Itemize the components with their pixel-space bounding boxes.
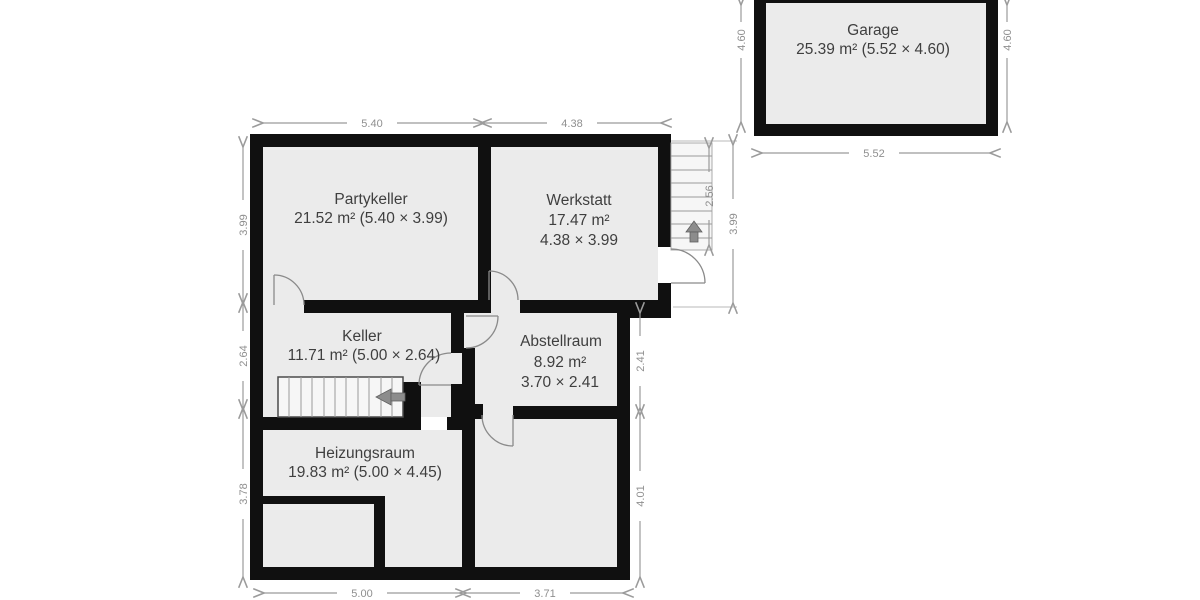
keller-name: Keller: [342, 328, 382, 345]
abstellraum-area: 8.92 m²: [534, 354, 587, 371]
dim-right-bottom: 4.01: [635, 415, 647, 577]
dim-garage-right: 4.60: [1002, 5, 1014, 122]
keller-stairs: [278, 377, 405, 417]
floor-plan-page: 5.40 4.38 3.99 2.64 3.78 3.99: [0, 0, 1200, 600]
werkstatt-size: 4.38 × 3.99: [540, 232, 618, 249]
abstellraum-name: Abstellraum: [520, 333, 602, 350]
keller-area: 11.71 m² (5.00 × 2.64): [288, 347, 441, 364]
dim-label: 3.71: [534, 588, 555, 600]
dim-garage-bottom: 5.52: [762, 148, 990, 160]
room-label-werkstatt: Werkstatt 17.47 m² 4.38 × 3.99: [540, 192, 618, 249]
dim-label: 2.56: [704, 185, 716, 206]
dim-label: 3.99: [238, 214, 250, 235]
partykeller-area: 21.52 m² (5.40 × 3.99): [294, 210, 448, 227]
dim-label: 5.52: [863, 148, 884, 160]
dim-label: 4.60: [736, 29, 748, 50]
dim-label: 2.41: [635, 350, 647, 371]
dim-label: 3.99: [728, 213, 740, 234]
door-exterior-stairs: [671, 249, 705, 283]
dim-garage-left: 4.60: [736, 5, 748, 122]
dim-top-left: 5.40: [263, 118, 481, 130]
werkstatt-area: 17.47 m²: [548, 212, 609, 229]
dim-left-top: 3.99: [238, 147, 250, 302]
dim-left-mid: 2.64: [238, 304, 250, 408]
heizungsraum-area: 19.83 m² (5.00 × 4.45): [288, 464, 442, 481]
dim-bottom-left: 5.00: [264, 588, 460, 600]
garage-area: 25.39 m² (5.52 × 4.60): [796, 41, 950, 58]
partykeller-name: Partykeller: [334, 191, 407, 208]
werkstatt-name: Werkstatt: [546, 192, 612, 209]
abstellraum-size: 3.70 × 2.41: [521, 374, 599, 391]
dim-label: 3.78: [238, 483, 250, 504]
floor-plan-canvas: 5.40 4.38 3.99 2.64 3.78 3.99: [0, 0, 1200, 600]
dim-right-top: 3.99: [728, 145, 740, 303]
dim-label: 4.60: [1002, 29, 1014, 50]
dim-bottom-right: 3.71: [466, 588, 623, 600]
dim-label: 2.64: [238, 345, 250, 366]
dim-left-bottom: 3.78: [238, 410, 250, 577]
dim-label: 5.40: [361, 118, 382, 130]
dim-label: 5.00: [351, 588, 372, 600]
dim-label: 4.01: [635, 485, 647, 506]
dim-top-right: 4.38: [484, 118, 661, 130]
heizungsraum-name: Heizungsraum: [315, 445, 415, 462]
garage-name: Garage: [847, 22, 899, 39]
dim-right-mid: 2.41: [635, 313, 647, 408]
dim-label: 4.38: [561, 118, 582, 130]
